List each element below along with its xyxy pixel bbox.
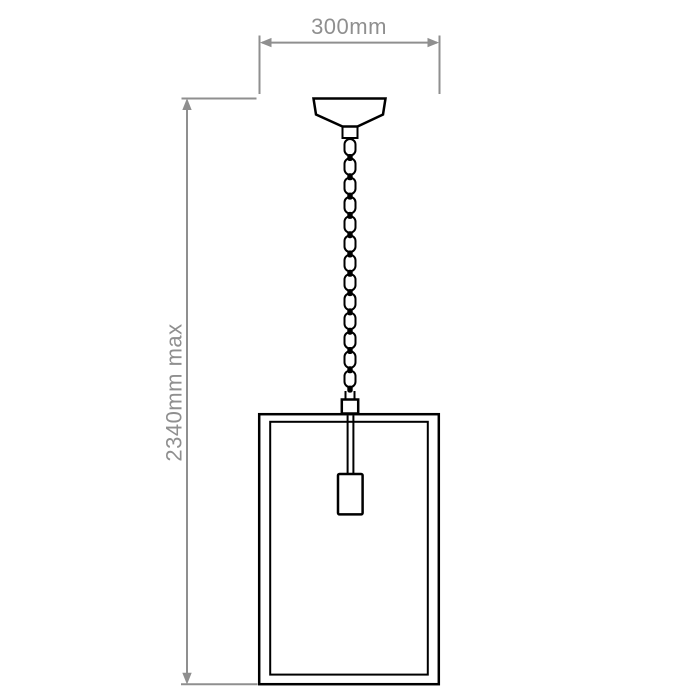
height-dimension: 2340mm max [162, 98, 258, 684]
lantern-frame-outer [259, 414, 439, 684]
pendant-light [259, 99, 439, 685]
lantern-frame-inner [270, 422, 428, 675]
height-dimension-label: 2340mm max [162, 323, 187, 461]
canopy-hub [343, 127, 358, 139]
width-dimension-label: 300mm [311, 14, 387, 39]
arrowhead-down-icon [182, 673, 191, 685]
bulb-holder [338, 474, 363, 514]
chain-connector [342, 400, 358, 414]
arrowhead-left-icon [260, 38, 272, 47]
pendant-light-diagram: 300mm 2340mm max [0, 0, 700, 700]
arrowhead-right-icon [428, 38, 440, 47]
suspension-chain [345, 139, 356, 400]
ceiling-canopy-outline [314, 99, 386, 127]
arrowhead-up-icon [182, 98, 191, 110]
dimension-drawing: 300mm 2340mm max [0, 0, 700, 700]
width-dimension: 300mm [260, 14, 440, 94]
